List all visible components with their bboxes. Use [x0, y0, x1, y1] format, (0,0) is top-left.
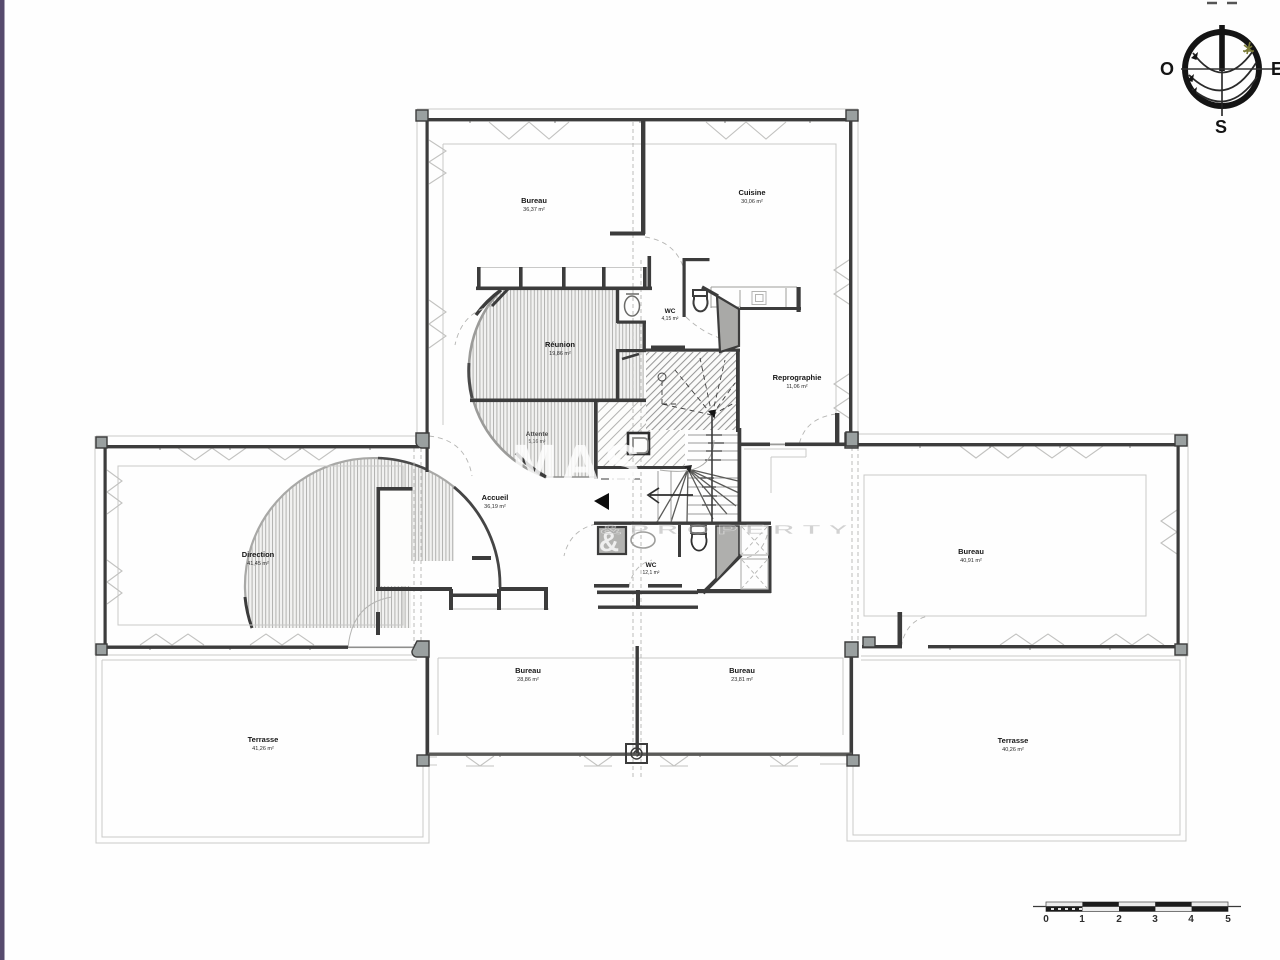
svg-text:23,81 m²: 23,81 m²	[731, 677, 753, 683]
svg-text:O: O	[1160, 59, 1174, 79]
svg-text:Accueil: Accueil	[482, 493, 509, 502]
svg-text:41,26 m²: 41,26 m²	[252, 746, 274, 752]
svg-text:1: 1	[1079, 914, 1085, 925]
svg-text:Terrasse: Terrasse	[998, 736, 1029, 745]
svg-text:19,86 m²: 19,86 m²	[549, 351, 571, 357]
svg-text:41,45 m²: 41,45 m²	[247, 561, 269, 567]
svg-text:36,37 m²: 36,37 m²	[523, 207, 545, 213]
svg-text:30,06 m²: 30,06 m²	[741, 199, 763, 205]
svg-text:E: E	[1271, 59, 1280, 79]
svg-text:Reprographie: Reprographie	[773, 373, 822, 382]
svg-text:MAS: MAS	[512, 434, 644, 494]
svg-text:Bureau: Bureau	[521, 196, 547, 205]
svg-text:28,86 m²: 28,86 m²	[517, 677, 539, 683]
svg-text:S: S	[1215, 117, 1227, 137]
svg-text:40,91 m²: 40,91 m²	[960, 558, 982, 564]
svg-text:Direction: Direction	[242, 550, 275, 559]
svg-text:WC: WC	[665, 308, 676, 315]
svg-text:2: 2	[1116, 914, 1122, 925]
svg-text:Bureau: Bureau	[958, 547, 984, 556]
svg-text:11,06 m²: 11,06 m²	[786, 384, 807, 390]
svg-text:5: 5	[1225, 914, 1231, 925]
svg-text:36,19 m²: 36,19 m²	[484, 504, 506, 510]
svg-text:& P R O P E R T Y: & P R O P E R T Y	[600, 523, 850, 537]
svg-text:Réunion: Réunion	[545, 340, 575, 349]
svg-text:Cuisine: Cuisine	[738, 188, 765, 197]
svg-text:3: 3	[1152, 914, 1158, 925]
svg-text:Bureau: Bureau	[515, 666, 541, 675]
svg-text:12,1 m²: 12,1 m²	[643, 570, 660, 576]
svg-text:Terrasse: Terrasse	[248, 735, 279, 744]
svg-text:Bureau: Bureau	[729, 666, 755, 675]
svg-text:4,15 m²: 4,15 m²	[662, 316, 679, 322]
svg-text:0: 0	[1043, 914, 1049, 925]
svg-text:WC: WC	[646, 562, 657, 569]
svg-text:40,26 m²: 40,26 m²	[1002, 747, 1024, 753]
svg-text:4: 4	[1188, 914, 1194, 925]
